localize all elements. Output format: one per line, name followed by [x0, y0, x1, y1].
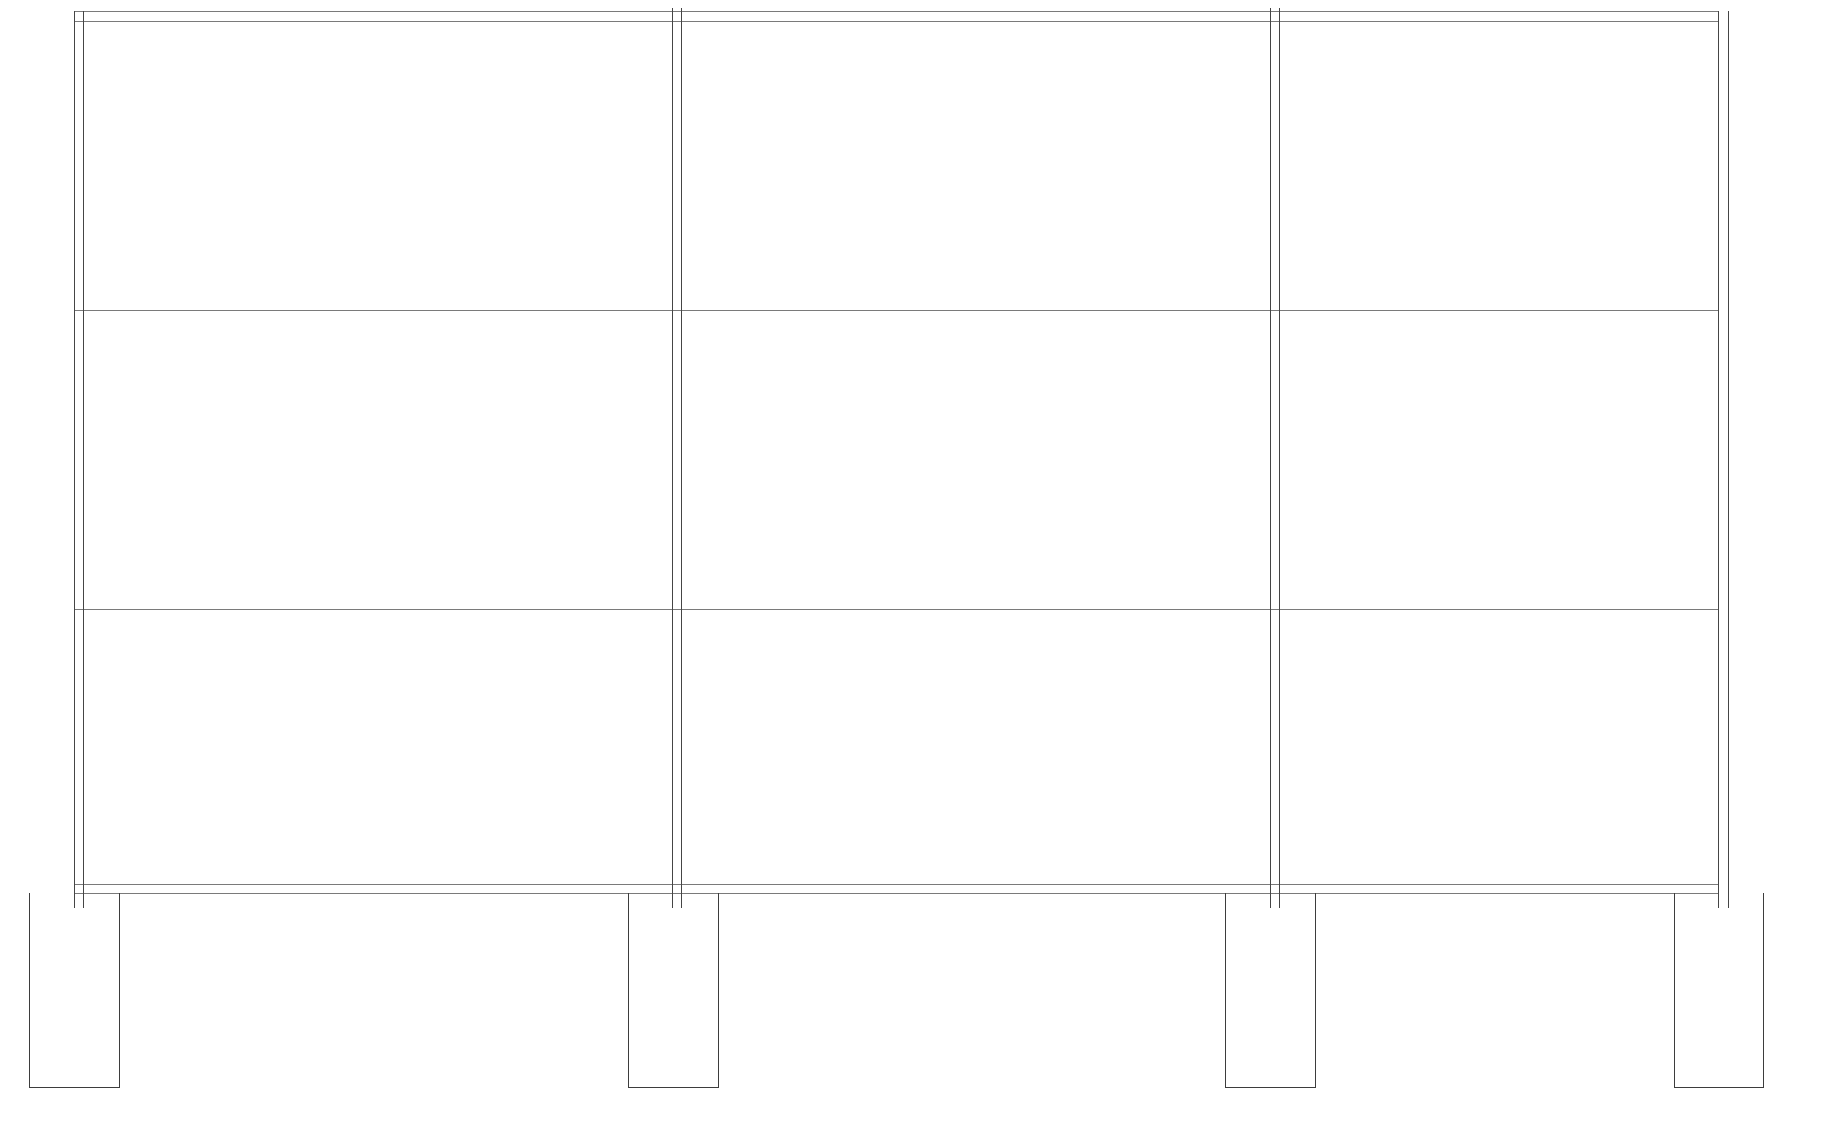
- frame-elevation-drawing: [0, 0, 1826, 1142]
- cad-drawing-viewport: [0, 0, 1826, 1142]
